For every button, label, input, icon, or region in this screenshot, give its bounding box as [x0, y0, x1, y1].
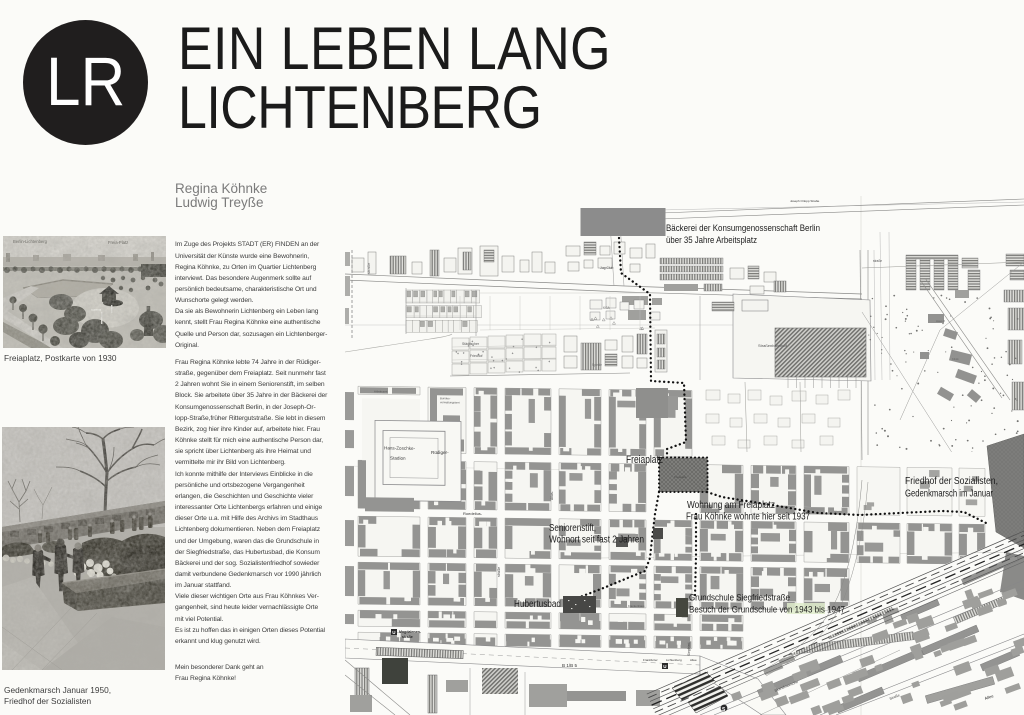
svg-text:Joseph Orlopp Straße: Joseph Orlopp Straße	[790, 199, 820, 203]
svg-text:Straßenbahnhof: Straßenbahnhof	[758, 343, 788, 348]
svg-text:Arbeitsamt: Arbeitsamt	[374, 389, 388, 393]
svg-text:Bäckerei der Konsumgenossensch: Bäckerei der Konsumgenossenschaft Berlin	[666, 223, 820, 234]
svg-text:Gedenkmarsch im Januar: Gedenkmarsch im Januar	[905, 489, 994, 500]
svg-text:Rüdiger-: Rüdiger-	[431, 450, 449, 455]
svg-text:U: U	[392, 630, 395, 635]
svg-text:über 35 Jahre Arbeitsplatz: über 35 Jahre Arbeitsplatz	[666, 235, 757, 246]
svg-text:Jug Club: Jug Club	[600, 266, 613, 270]
svg-text:KGA: KGA	[603, 306, 611, 310]
svg-text:Siegfried.: Siegfried.	[687, 642, 691, 656]
svg-text:Wohnung am Freiaplatz: Wohnung am Freiaplatz	[687, 500, 775, 511]
svg-text:Allee: Allee	[690, 658, 697, 662]
svg-text:U: U	[663, 664, 666, 669]
svg-text:Friedhof der Sozialisten,: Friedhof der Sozialisten,	[905, 476, 998, 487]
svg-text:Krankenhaus: Krankenhaus	[628, 604, 645, 608]
svg-text:Stadion: Stadion	[390, 456, 406, 461]
svg-text:straße: straße	[873, 259, 882, 263]
svg-text:Lichtenberg: Lichtenberg	[666, 658, 682, 662]
svg-text:Wohnort seit fast 2 Jahren: Wohnort seit fast 2 Jahren	[549, 535, 644, 546]
svg-text:Roedelius-: Roedelius-	[463, 511, 483, 516]
svg-text:Straße: Straße	[889, 693, 901, 701]
svg-text:Besuch der Grundschule von 194: Besuch der Grundschule von 1943 bis 1947	[689, 605, 845, 616]
svg-text:Freiaplatz: Freiaplatz	[674, 475, 687, 479]
svg-text:verwaltungsamt: verwaltungsamt	[440, 400, 460, 404]
svg-text:Frankfurter: Frankfurter	[643, 658, 658, 662]
svg-text:straße: straße	[366, 262, 371, 274]
svg-text:Spinde: Spinde	[592, 363, 602, 367]
svg-text:Haus 8: Haus 8	[936, 319, 945, 323]
svg-text:Klinik: Klinik	[952, 357, 959, 361]
svg-text:Hubertusbad: Hubertusbad	[514, 599, 561, 610]
svg-text:Städtischer: Städtischer	[462, 342, 480, 346]
svg-text:Friedhof: Friedhof	[470, 354, 482, 358]
svg-text:Hans-Zoschke-: Hans-Zoschke-	[384, 446, 416, 451]
svg-text:Allee: Allee	[984, 693, 995, 701]
svg-text:Atlas-: Atlas-	[550, 491, 554, 500]
svg-text:Magdalenen-: Magdalenen-	[399, 630, 422, 634]
svg-text:Freiaplatz: Freiaplatz	[626, 454, 663, 466]
svg-text:Frau Köhnke wohnte hier seit 1: Frau Köhnke wohnte hier seit 1937	[686, 512, 810, 523]
svg-text:straße: straße	[402, 635, 413, 639]
svg-text:B 1/B 5: B 1/B 5	[562, 663, 578, 668]
svg-text:Grundschule Siegfriedstraße: Grundschule Siegfriedstraße	[689, 593, 790, 604]
svg-text:Seniorenstift,: Seniorenstift,	[549, 523, 596, 534]
svg-text:straße: straße	[497, 567, 501, 577]
